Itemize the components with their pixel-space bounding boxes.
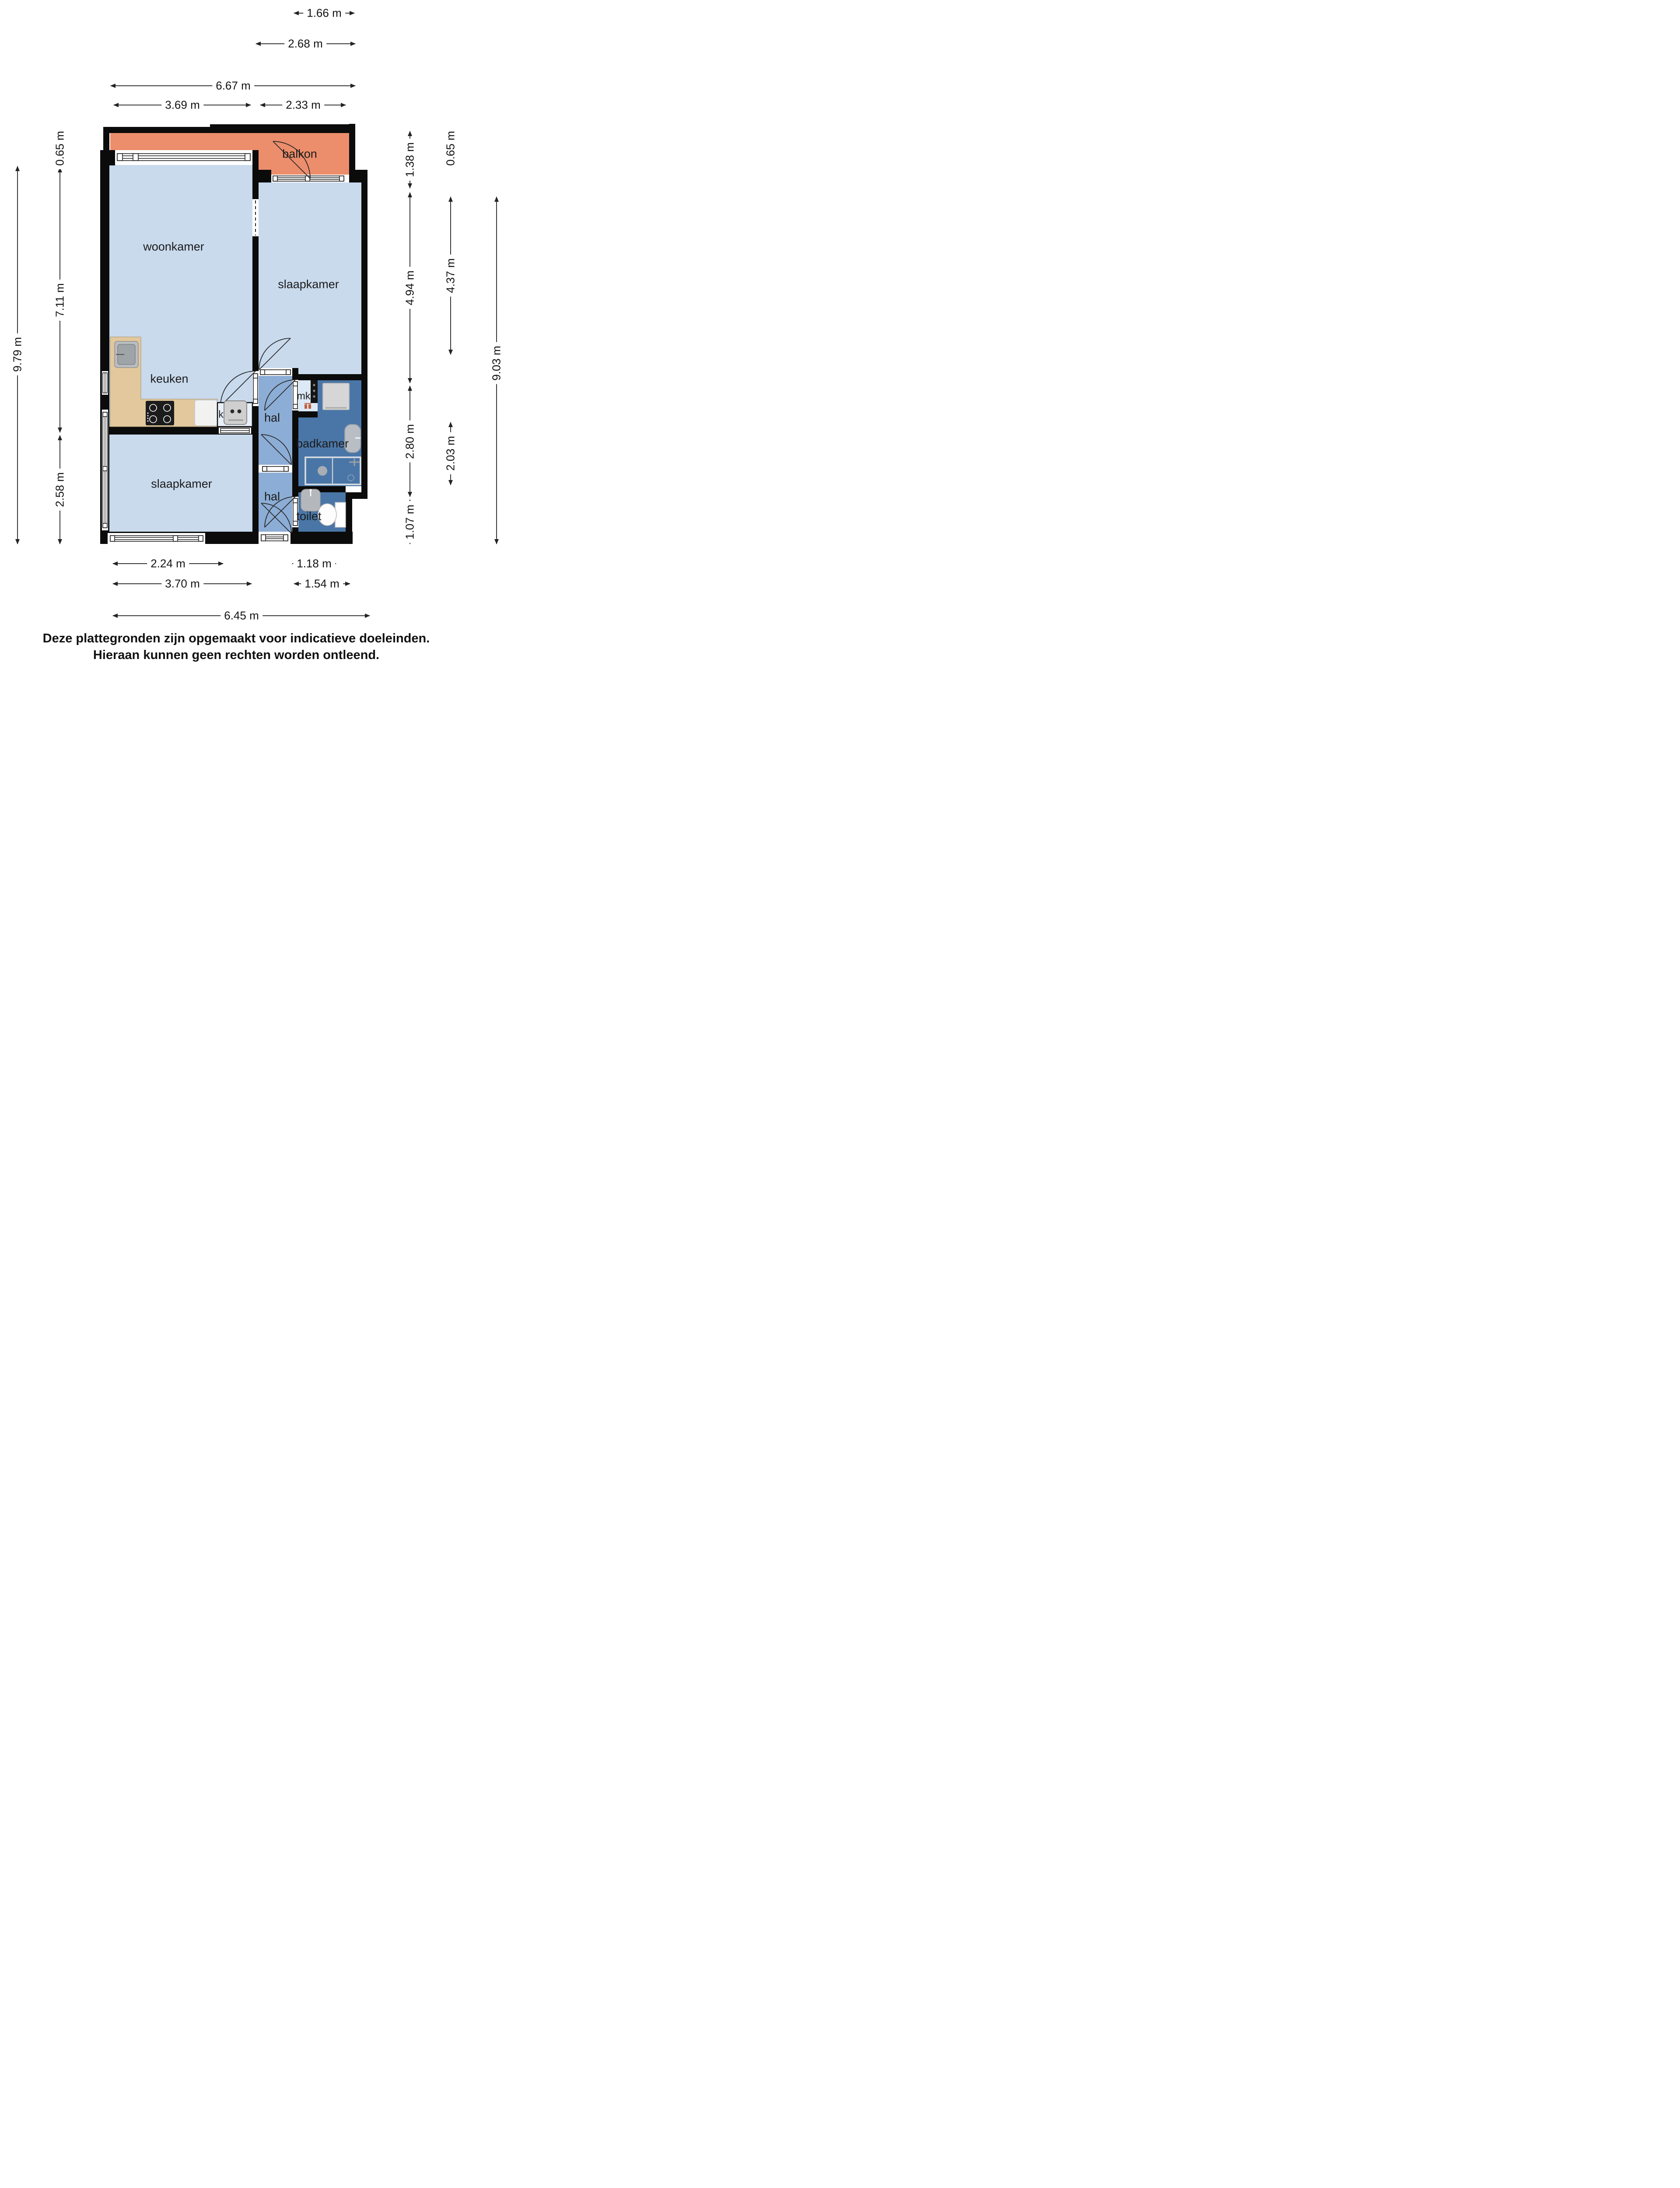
dim-bottom-3-70: 3.70 m	[161, 578, 203, 590]
stove-icon	[146, 401, 174, 425]
window-k-strip	[219, 428, 251, 434]
toilet-bowl-icon	[318, 502, 346, 527]
dim-right-1-07: 1.07 m	[404, 501, 416, 543]
dim-right-1-38: 1.38 m	[404, 139, 416, 181]
dim-top-2-68: 2.68 m	[284, 38, 326, 50]
disclaimer: Deze plattegronden zijn opgemaakt voor i…	[0, 630, 472, 664]
dim-bottom-2-24: 2.24 m	[147, 558, 189, 570]
window-bottom-slaapkamer	[108, 533, 205, 544]
dim-top-6-67: 6.67 m	[212, 80, 254, 92]
dim-right-2-03: 2.03 m	[444, 432, 457, 474]
disclaimer-line1: Deze plattegronden zijn opgemaakt voor i…	[0, 630, 472, 647]
dim-left-0-65: 0.65 m	[54, 127, 66, 169]
floorplan-drawing	[0, 0, 504, 672]
toilet-basin-icon	[301, 489, 320, 512]
label-hal-top: hal	[264, 411, 280, 425]
dim-top-2-33: 2.33 m	[282, 99, 324, 112]
label-kast-k: k	[218, 409, 224, 421]
dim-left-9-79: 9.79 m	[11, 333, 24, 375]
dim-bottom-6-45: 6.45 m	[220, 610, 262, 622]
dim-top-3-69: 3.69 m	[161, 99, 203, 112]
label-toilet: toilet	[296, 510, 321, 523]
label-slaapkamer-top: slaapkamer	[278, 278, 339, 291]
dim-right-2-80: 2.80 m	[404, 421, 416, 463]
dim-right-0-65: 0.65 m	[444, 127, 457, 169]
dim-right-9-03: 9.03 m	[490, 342, 503, 384]
label-woonkamer: woonkamer	[143, 240, 204, 254]
dim-right-4-37: 4.37 m	[444, 255, 457, 297]
label-slaapkamer-bottom: slaapkamer	[151, 477, 212, 491]
floorplan-page: { "plan": { "room_labels": { "balkon": "…	[0, 0, 504, 672]
washing-machine-icon	[323, 383, 349, 410]
dim-bottom-1-18: 1.18 m	[293, 558, 335, 570]
window-balkon-woonkamer	[115, 150, 252, 165]
dashed-wall-segment	[252, 199, 259, 236]
dim-left-2-58: 2.58 m	[54, 469, 66, 511]
disclaimer-line2: Hieraan kunnen geen rechten worden ontle…	[0, 647, 472, 663]
fridge-icon	[195, 400, 217, 426]
label-hal-bottom: hal	[264, 490, 280, 504]
dim-bottom-1-54: 1.54 m	[301, 578, 343, 590]
kitchen-sink-icon	[115, 341, 138, 368]
dim-right-4-94: 4.94 m	[404, 267, 416, 309]
label-badkamer: badkamer	[296, 437, 349, 451]
dim-left-7-11: 7.11 m	[54, 280, 66, 321]
label-balkon: balkon	[282, 147, 317, 161]
label-meterkast: mk	[297, 390, 311, 402]
dim-top-1-66: 1.66 m	[303, 7, 345, 20]
window-left-slaapkamer	[102, 410, 108, 530]
label-keuken: keuken	[150, 372, 188, 386]
window-left-keuken	[102, 371, 108, 395]
